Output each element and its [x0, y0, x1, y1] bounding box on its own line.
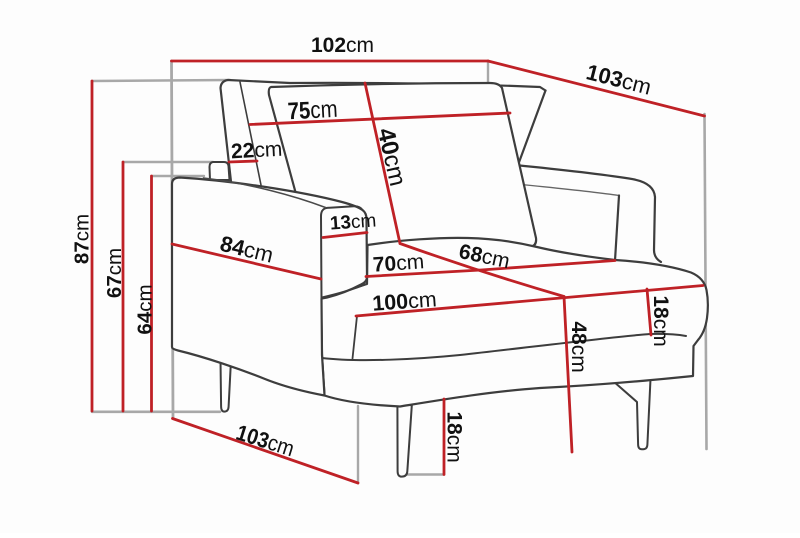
svg-text:70cm: 70cm	[372, 250, 425, 277]
svg-text:67cm: 67cm	[103, 248, 126, 298]
svg-text:48cm: 48cm	[567, 321, 590, 372]
svg-text:22cm: 22cm	[230, 138, 282, 164]
svg-text:18cm: 18cm	[649, 295, 672, 346]
svg-text:75cm: 75cm	[287, 95, 338, 125]
svg-text:13cm: 13cm	[329, 210, 377, 234]
svg-text:100cm: 100cm	[371, 287, 437, 315]
svg-text:18cm: 18cm	[443, 411, 466, 462]
svg-text:102cm: 102cm	[311, 34, 374, 57]
svg-text:64cm: 64cm	[134, 284, 157, 334]
svg-text:87cm: 87cm	[71, 214, 94, 264]
